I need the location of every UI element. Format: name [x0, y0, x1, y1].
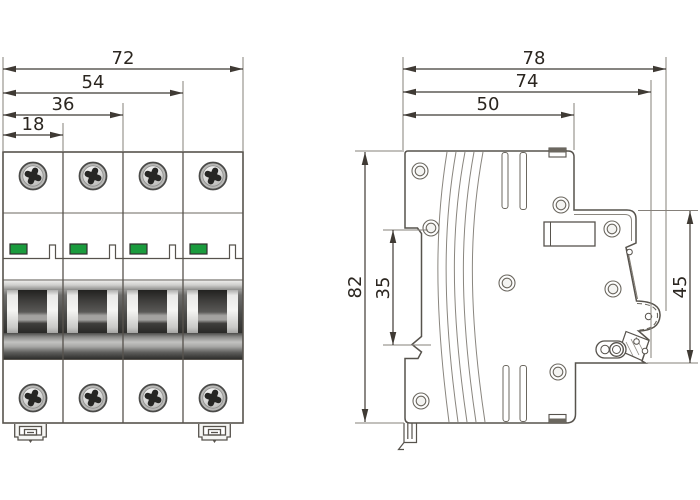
screw-icon — [200, 385, 227, 412]
side-body — [399, 148, 661, 450]
dim-label-74: 74 — [516, 71, 539, 92]
dim-label-18: 18 — [22, 114, 45, 135]
front-view: 72 54 36 18 — [3, 48, 243, 443]
side-body-outline — [405, 151, 660, 423]
label-window — [544, 222, 595, 246]
din-rail-clip-right — [199, 424, 231, 443]
dim-label-78: 78 — [523, 48, 546, 69]
screw-icon — [80, 163, 107, 190]
front-dimensions: 72 54 36 18 — [3, 48, 243, 151]
circuit-breaker-dimension-drawing: 72 54 36 18 — [0, 0, 700, 500]
dim-label-72: 72 — [112, 48, 135, 69]
dim-label-36: 36 — [52, 94, 75, 115]
top-clip-tab — [549, 148, 566, 157]
dimension-drawing: 72 54 36 18 — [0, 0, 700, 500]
screw-icon — [200, 163, 227, 190]
din-clip-slider — [399, 423, 417, 450]
screw-icon — [140, 163, 167, 190]
screw-icon — [80, 385, 107, 412]
dim-label-82: 82 — [345, 276, 366, 299]
side-view: 78 74 50 82 35 45 — [345, 48, 698, 450]
screw-icon — [20, 163, 47, 190]
screw-icon — [140, 385, 167, 412]
dim-label-45: 45 — [670, 276, 691, 299]
dim-label-50: 50 — [477, 94, 500, 115]
front-body — [3, 152, 243, 443]
dim-label-35: 35 — [373, 277, 394, 300]
dim-label-54: 54 — [82, 72, 105, 93]
din-rail-clip-left — [15, 424, 47, 443]
screw-icon — [20, 385, 47, 412]
bottom-clip-tab — [549, 415, 566, 424]
